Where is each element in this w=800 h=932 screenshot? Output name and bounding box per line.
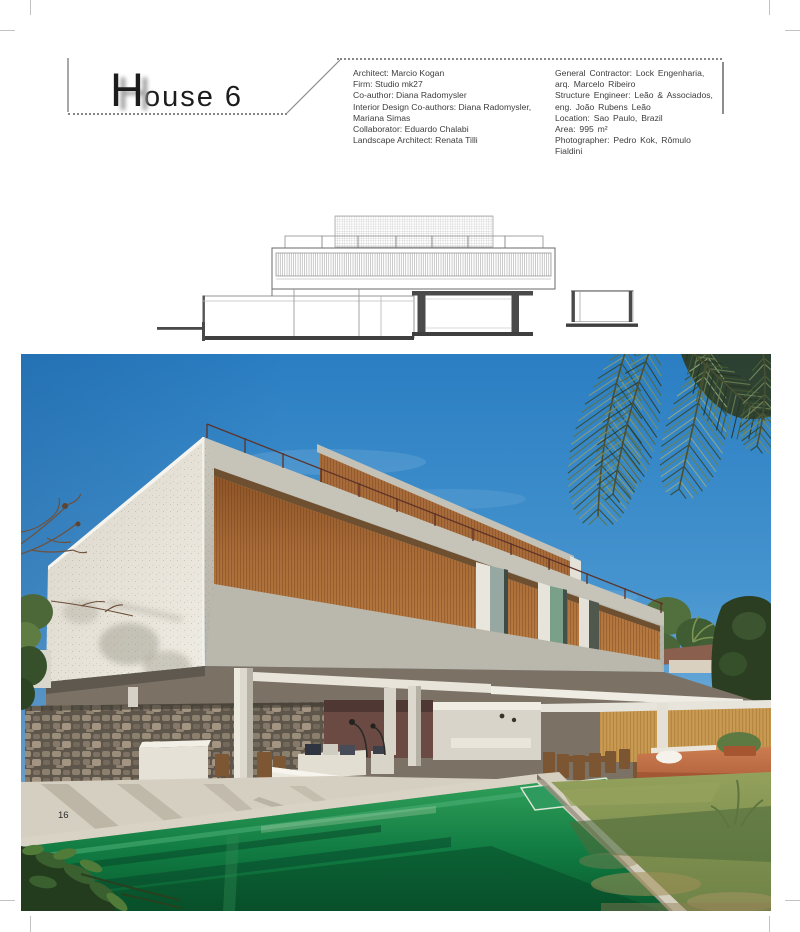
credit-line: Firm: Studio mk27 bbox=[353, 79, 553, 90]
title-left-rule bbox=[67, 58, 69, 112]
exterior-photograph: 16 bbox=[21, 354, 771, 911]
crop-mark-bottom-left-h bbox=[0, 900, 15, 901]
elevation-roof-block bbox=[285, 216, 543, 248]
credit-line: Landscape Architect: Renata Tilli bbox=[353, 135, 553, 146]
credits-column-left: Architect: Marcio KoganFirm: Studio mk27… bbox=[353, 68, 553, 146]
title-rest: ouse 6 bbox=[144, 81, 243, 113]
credit-line: Area: 995 m² bbox=[555, 124, 723, 135]
page-number: 16 bbox=[58, 810, 69, 821]
credits-dotted-border bbox=[337, 58, 722, 60]
credit-line: arq. Marcelo Ribeiro bbox=[555, 79, 723, 90]
credit-line: Collaborator: Eduardo Chalabi bbox=[353, 124, 553, 135]
credits-column-right: General Contractor: Lock Engenharia,arq.… bbox=[555, 68, 723, 157]
book-page: HHouse 6 Architect: Marcio KoganFirm: St… bbox=[0, 0, 800, 932]
right-end-column bbox=[657, 703, 668, 749]
crop-mark-top-right-v bbox=[769, 0, 770, 15]
title-dotted-underline bbox=[68, 113, 287, 115]
elevation-slatted-band bbox=[272, 248, 555, 289]
elevation-drawing bbox=[150, 195, 650, 345]
crop-mark-bottom-right-h bbox=[785, 900, 800, 901]
credit-line: General Contractor: Lock Engenharia, bbox=[555, 68, 723, 79]
credit-line: Photographer: Pedro Kok, Rômulo bbox=[555, 135, 723, 146]
elevation-pillar-section bbox=[412, 291, 533, 336]
credit-line: Structure Engineer: Leão & Associados, bbox=[555, 90, 723, 101]
header-diagonal-line bbox=[282, 56, 344, 118]
elevation-right-box bbox=[566, 290, 638, 327]
crop-mark-top-left-h bbox=[0, 30, 15, 31]
credit-line: Mariana Simas bbox=[353, 113, 553, 124]
white-planter bbox=[139, 746, 208, 784]
interior-white-wall bbox=[433, 702, 541, 760]
crop-mark-top-left-v bbox=[30, 0, 31, 15]
title-initial: H bbox=[110, 63, 144, 116]
crop-mark-bottom-right-v bbox=[769, 916, 770, 932]
crop-mark-bottom-left-v bbox=[30, 916, 31, 932]
credit-line: Co-author: Diana Radomysler bbox=[353, 90, 553, 101]
credit-line: Interior Design Co-authors: Diana Radomy… bbox=[353, 102, 553, 113]
corner-highlight bbox=[202, 437, 204, 666]
crop-mark-top-right-h bbox=[785, 30, 800, 31]
round-white-lamp bbox=[656, 751, 682, 764]
elevation-lower-left-box bbox=[203, 289, 415, 339]
credit-line: Fialdini bbox=[555, 146, 723, 157]
credit-line: Architect: Marcio Kogan bbox=[353, 68, 553, 79]
photo-illustration bbox=[21, 354, 771, 911]
credit-line: Location: Sao Paulo, Brazil bbox=[555, 113, 723, 124]
page-title: HHouse 6 bbox=[110, 66, 243, 114]
title-initial-wrap: HH bbox=[110, 66, 144, 113]
credit-line: eng. João Rubens Leão bbox=[555, 102, 723, 113]
